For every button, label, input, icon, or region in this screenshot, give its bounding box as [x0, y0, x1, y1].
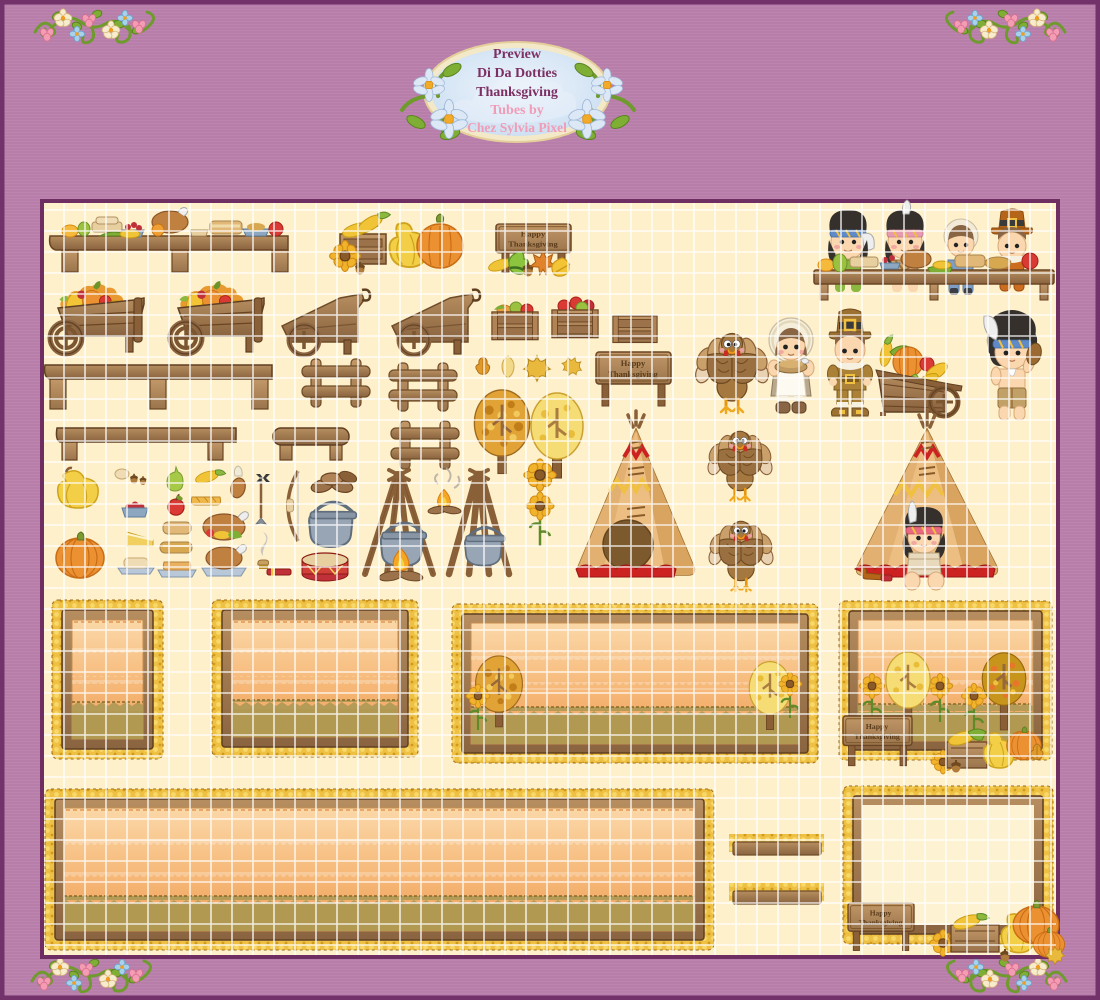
svg-text:Tubes by: Tubes by	[490, 103, 544, 118]
svg-text:Preview: Preview	[493, 47, 542, 62]
svg-text:Thanksgiving: Thanksgiving	[476, 85, 558, 100]
svg-text:Chez Sylvia Pixel: Chez Sylvia Pixel	[467, 120, 567, 135]
svg-text:Di Da Dotties: Di Da Dotties	[477, 66, 558, 81]
